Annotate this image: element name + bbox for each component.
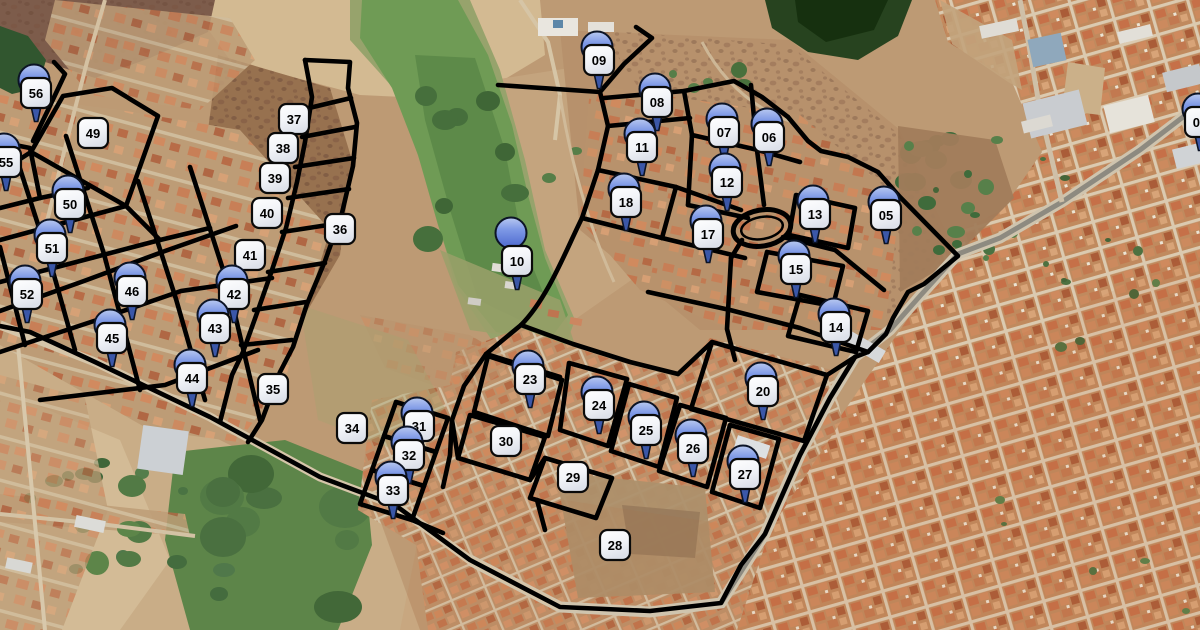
svg-text:39: 39 (268, 171, 282, 186)
svg-text:33: 33 (386, 483, 400, 498)
svg-text:26: 26 (686, 441, 700, 456)
svg-text:55: 55 (0, 155, 13, 170)
svg-text:35: 35 (266, 382, 280, 397)
svg-text:13: 13 (808, 207, 822, 222)
svg-text:28: 28 (608, 538, 622, 553)
svg-text:38: 38 (276, 141, 290, 156)
svg-text:23: 23 (523, 372, 537, 387)
svg-text:36: 36 (333, 222, 347, 237)
svg-text:15: 15 (789, 262, 803, 277)
svg-text:52: 52 (20, 287, 34, 302)
svg-text:04: 04 (1193, 115, 1200, 130)
svg-text:05: 05 (879, 208, 893, 223)
svg-text:30: 30 (499, 434, 513, 449)
svg-text:44: 44 (185, 371, 200, 386)
svg-text:17: 17 (701, 227, 715, 242)
svg-text:29: 29 (566, 470, 580, 485)
svg-text:46: 46 (125, 284, 139, 299)
svg-text:49: 49 (86, 126, 100, 141)
svg-text:24: 24 (592, 398, 607, 413)
svg-text:50: 50 (63, 197, 77, 212)
svg-text:56: 56 (29, 86, 43, 101)
svg-text:41: 41 (243, 248, 257, 263)
svg-text:37: 37 (287, 112, 301, 127)
svg-text:43: 43 (208, 321, 222, 336)
svg-text:25: 25 (639, 423, 653, 438)
svg-text:12: 12 (720, 175, 734, 190)
svg-text:40: 40 (260, 206, 274, 221)
svg-text:09: 09 (592, 53, 606, 68)
svg-text:20: 20 (756, 384, 770, 399)
svg-text:14: 14 (829, 320, 844, 335)
svg-text:51: 51 (45, 241, 59, 256)
svg-text:34: 34 (345, 421, 360, 436)
svg-text:45: 45 (105, 331, 119, 346)
svg-text:07: 07 (717, 125, 731, 140)
svg-text:06: 06 (762, 130, 776, 145)
svg-text:27: 27 (738, 467, 752, 482)
svg-text:11: 11 (635, 140, 649, 155)
svg-text:08: 08 (650, 95, 664, 110)
svg-text:10: 10 (510, 254, 524, 269)
svg-text:32: 32 (402, 448, 416, 463)
svg-text:42: 42 (227, 287, 241, 302)
svg-text:18: 18 (619, 195, 633, 210)
